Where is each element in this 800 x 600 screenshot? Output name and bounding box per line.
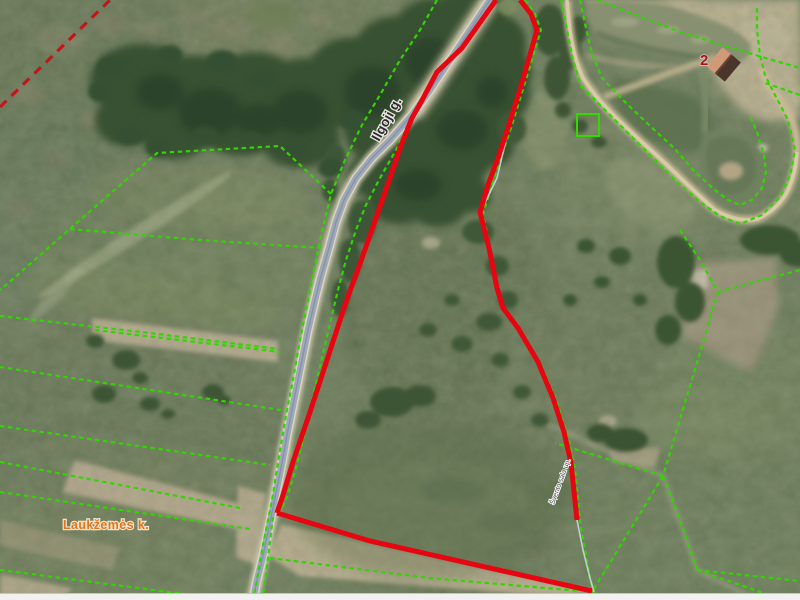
svg-text:2: 2 [700,52,708,69]
svg-text:Laukžemės k.: Laukžemės k. [63,518,149,532]
